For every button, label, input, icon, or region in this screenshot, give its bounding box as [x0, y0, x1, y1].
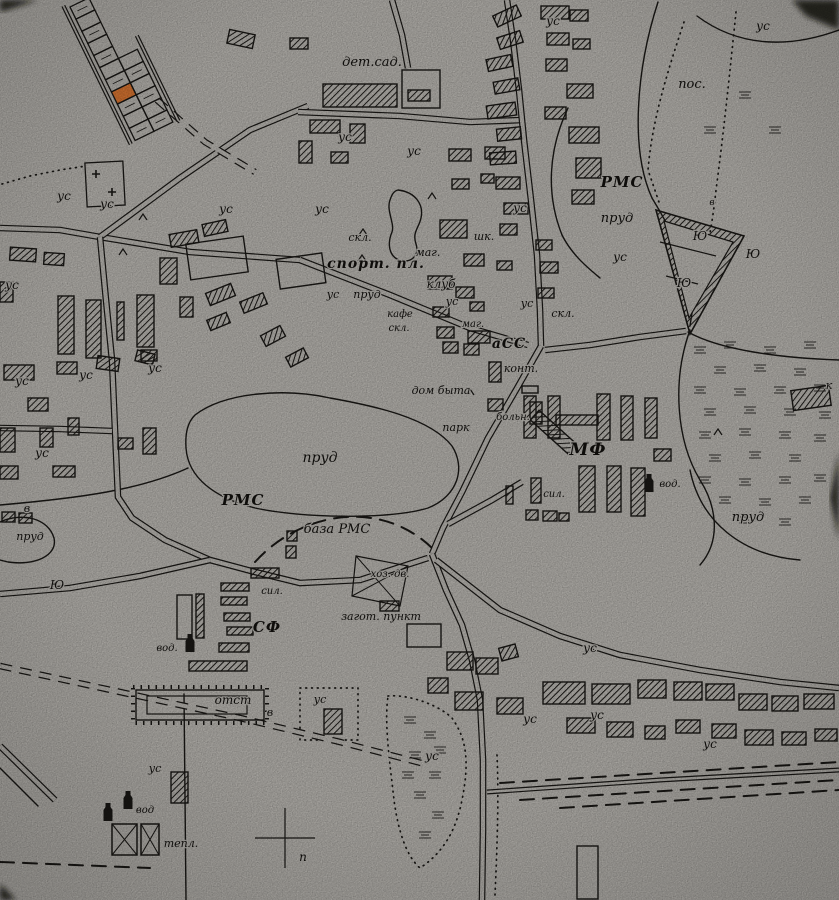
scanned-map-page: усусдет.сад.пос.усусусусусусусРМСпрудскл… — [0, 0, 839, 900]
vignette-overlay — [0, 0, 839, 900]
map-svg: усусдет.сад.пос.усусусусусусусРМСпрудскл… — [0, 0, 839, 900]
